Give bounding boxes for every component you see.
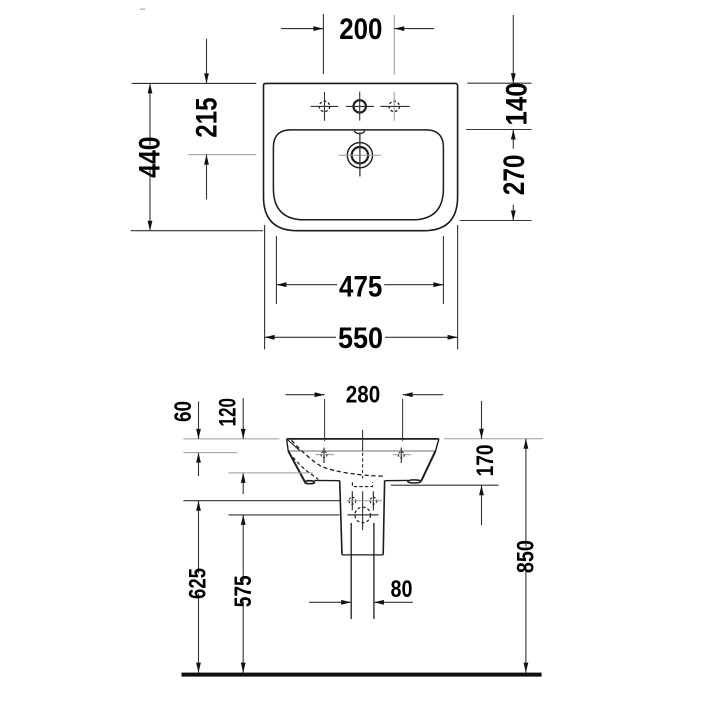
svg-text:80: 80 bbox=[391, 576, 413, 603]
svg-text:60: 60 bbox=[170, 401, 197, 422]
svg-text:280: 280 bbox=[346, 382, 381, 409]
svg-text:140: 140 bbox=[500, 82, 533, 125]
svg-text:550: 550 bbox=[338, 322, 383, 355]
svg-text:170: 170 bbox=[472, 444, 499, 476]
svg-text:215: 215 bbox=[191, 97, 224, 137]
svg-text:440: 440 bbox=[134, 136, 167, 178]
svg-text:625: 625 bbox=[185, 568, 212, 599]
svg-text:270: 270 bbox=[498, 155, 531, 196]
svg-text:200: 200 bbox=[339, 13, 382, 46]
svg-text:475: 475 bbox=[339, 270, 382, 303]
svg-text:120: 120 bbox=[215, 398, 242, 427]
svg-text:850: 850 bbox=[513, 540, 540, 573]
svg-text:575: 575 bbox=[230, 575, 257, 607]
